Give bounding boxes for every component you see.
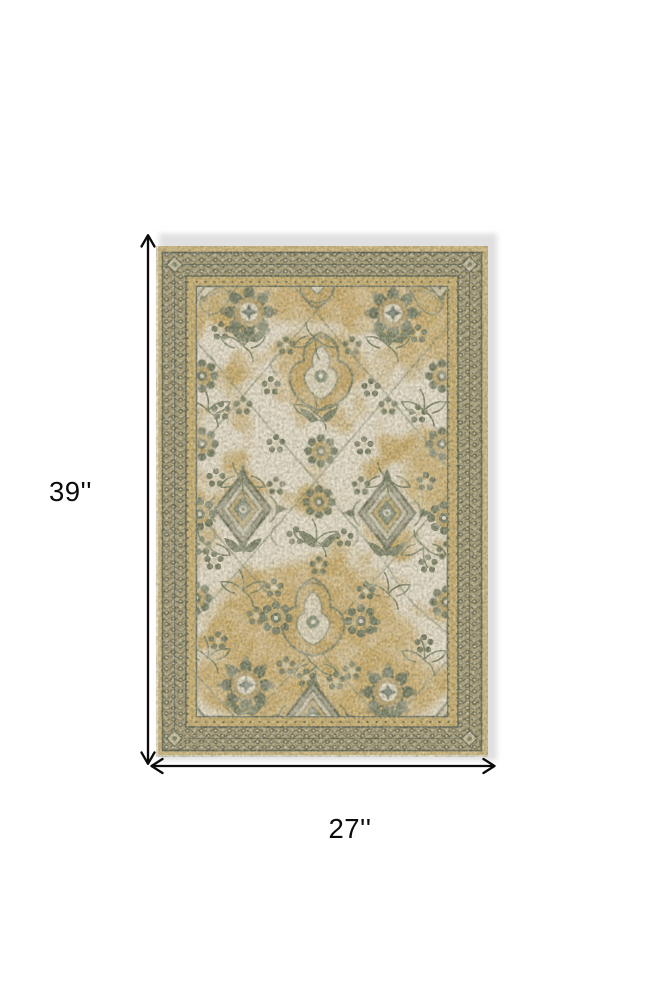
svg-text:39'': 39'' bbox=[49, 476, 92, 507]
svg-text:27'': 27'' bbox=[328, 813, 371, 844]
